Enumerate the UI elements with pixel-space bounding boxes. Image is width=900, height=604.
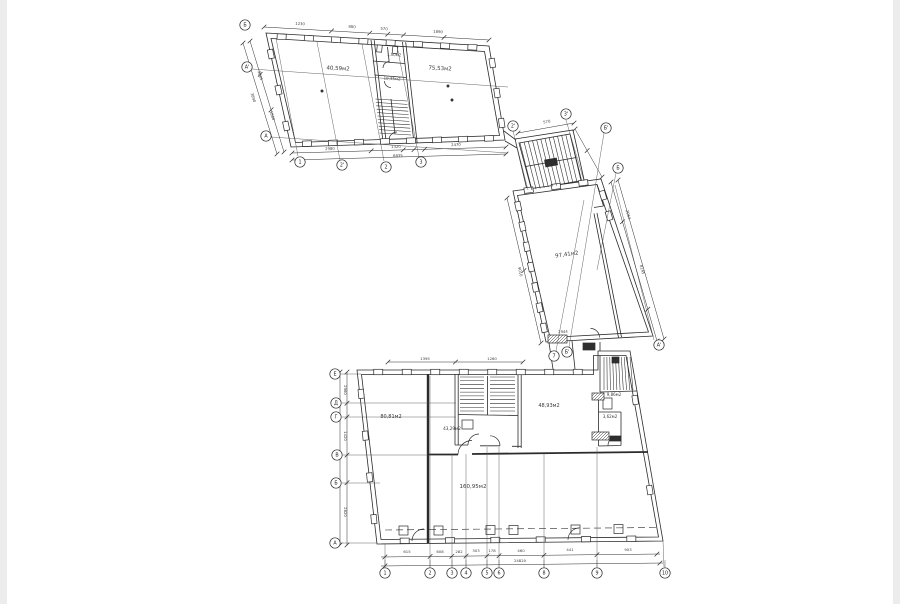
room-area-label: 43,29м2 <box>443 426 461 431</box>
dimension-label: 1230 <box>295 21 305 27</box>
grid-bubble-label: 4 <box>464 571 467 577</box>
window-mark <box>488 369 497 374</box>
window-mark <box>386 40 395 46</box>
wc-fixture <box>377 45 383 52</box>
dimension-tick <box>275 152 280 157</box>
grid-bubble-label: Б' <box>565 350 570 356</box>
grid-axis-line <box>663 541 664 567</box>
dimension-label: 1860 <box>269 110 277 121</box>
window-mark <box>627 536 636 541</box>
dimension-label: 2980 <box>343 385 348 395</box>
column <box>486 526 495 535</box>
floor-plan: БА'А12'232'3'Б'Б7Б'А'ЕДГВБА123456891040,… <box>0 0 900 604</box>
grid-bubble-label: 7 <box>552 354 555 360</box>
walls-layer <box>266 33 663 544</box>
window-mark <box>440 43 449 49</box>
window-mark <box>489 58 496 68</box>
dimension-tick <box>505 196 510 201</box>
dimension-tick <box>539 341 544 346</box>
window-mark <box>545 369 554 374</box>
column <box>399 526 408 535</box>
dimension-label: 178 <box>488 548 496 553</box>
dimension-label: 9010 <box>517 266 524 277</box>
dimension-line <box>381 554 660 557</box>
window-mark <box>358 389 364 399</box>
window-mark <box>304 35 313 41</box>
dimension-label: 3890 <box>250 92 258 103</box>
window-mark <box>413 41 422 47</box>
window-mark <box>494 88 501 98</box>
grid-bubble-label: 2 <box>428 571 431 577</box>
dimension-label: 2820 <box>343 507 348 517</box>
window-mark <box>445 538 454 543</box>
grid-bubble-label: 6 <box>497 571 500 577</box>
column <box>571 525 580 534</box>
room-area-label: 1,50м2 <box>387 52 402 58</box>
room-area-label: 10,35м2 <box>383 76 401 82</box>
grid-bubble-label: 1 <box>383 571 386 577</box>
window-mark <box>632 395 639 405</box>
grid-bubble-label: Е <box>333 372 336 378</box>
grid-bubble-label: 2' <box>511 124 515 130</box>
window-mark <box>459 369 468 374</box>
wing-d-outer-wall <box>357 351 663 544</box>
grid-bubble-label: А' <box>245 65 250 71</box>
room-area-label: 75,53м2 <box>428 65 452 72</box>
dimension-label: 282 <box>455 549 463 554</box>
dimension-label: 1420 <box>343 431 348 441</box>
grid-bubble-label: 3 <box>450 571 453 577</box>
window-mark <box>380 139 389 145</box>
dimension-label: 1395 <box>420 356 430 361</box>
window-mark <box>484 136 493 142</box>
dimension-tick <box>572 121 577 126</box>
grid-bubble-label: Б' <box>604 126 609 132</box>
dimension-tick <box>248 39 253 44</box>
dimension-label: 8145 <box>639 264 647 275</box>
dimension-label: 303 <box>472 548 480 553</box>
dimension-label: 570 <box>543 118 552 124</box>
window-mark <box>581 536 590 541</box>
grid-bubble-label: Б <box>616 166 619 172</box>
dimension-label: 615 <box>403 549 411 554</box>
window-mark <box>431 369 440 374</box>
window-mark <box>402 369 411 374</box>
window-mark <box>579 180 589 187</box>
window-mark <box>646 485 653 495</box>
window-mark <box>277 34 286 40</box>
dimension-tick <box>600 175 605 180</box>
fixture-block <box>462 420 473 429</box>
dimension-label: 570 <box>380 26 388 31</box>
room-area-label: 40,59м2 <box>326 65 350 72</box>
grid-bubble-label: 1 <box>298 160 301 166</box>
dimension-tick <box>609 180 614 185</box>
window-mark <box>359 38 368 44</box>
dimension-label: 441 <box>566 547 574 552</box>
room-area-label: 3,62м2 <box>603 414 618 419</box>
window-mark <box>524 187 534 194</box>
dimension-label: 608 <box>436 549 444 554</box>
dark-wall-block <box>583 343 595 350</box>
survey-dot <box>447 85 449 87</box>
column <box>614 525 623 534</box>
window-mark <box>302 141 311 147</box>
grid-bubble-label: 5 <box>485 571 488 577</box>
grid-bubble-label: Г <box>335 415 338 421</box>
dimension-label: 2005 <box>257 70 265 81</box>
grid-bubble-label: 9 <box>595 571 598 577</box>
survey-dot <box>321 90 323 92</box>
window-mark <box>366 473 372 483</box>
window-mark <box>400 538 409 543</box>
column <box>434 526 443 535</box>
dimension-tick <box>573 127 578 132</box>
grid-bubble-label: Д <box>334 401 338 407</box>
grid-bubble-label: Б <box>334 481 337 487</box>
window-mark <box>331 37 340 43</box>
grid-bubble-label: 10 <box>662 571 668 577</box>
dimension-label: 6835 <box>393 153 403 158</box>
dimension-tick <box>585 148 590 153</box>
window-mark <box>498 118 505 128</box>
dimension-label: 2944 <box>558 329 568 334</box>
grid-bubble-label: А' <box>657 343 662 349</box>
grid-bubble-label: 8 <box>542 571 545 577</box>
dimension-tick <box>616 178 621 183</box>
window-mark <box>354 139 363 145</box>
room-area-label: 80,81м2 <box>380 414 401 420</box>
grid-bubble-label: 2 <box>384 165 387 171</box>
grid-bubble-label: Б <box>243 23 246 29</box>
room-area-label: 160,95м2 <box>460 484 487 490</box>
window-mark <box>468 44 477 50</box>
grid-bubble-label: 3 <box>419 160 422 166</box>
floor-plan-page: БА'А12'232'3'Б'Б7Б'А'ЕДГВБА123456891040,… <box>0 0 900 604</box>
window-mark <box>362 431 368 441</box>
dimension-label: 2980 <box>325 146 335 151</box>
grid-bubble-label: 3' <box>564 112 568 118</box>
column <box>509 526 518 535</box>
dimension-label: 880 <box>348 24 356 29</box>
dimension-label: 2470 <box>451 142 461 147</box>
dimension-label: 1260 <box>487 356 497 361</box>
window-mark <box>371 514 377 524</box>
dimension-label: 1890 <box>433 29 443 35</box>
dimension-label: 1320 <box>391 144 401 149</box>
dimension-label: 903 <box>624 547 632 552</box>
grid-bubble-label: 2' <box>340 163 344 169</box>
room-area-label: 48,93м2 <box>538 403 559 409</box>
dimension-tick <box>516 131 521 136</box>
window-mark <box>432 137 441 143</box>
dimension-line <box>381 563 663 566</box>
dimension-label: 24820 <box>514 558 527 563</box>
window-mark <box>573 369 582 374</box>
window-mark <box>374 369 383 374</box>
dimension-tick <box>282 150 287 155</box>
dimension-label: 460 <box>517 548 525 553</box>
window-mark <box>516 369 525 374</box>
window-mark <box>491 537 500 542</box>
window-mark <box>406 138 415 144</box>
survey-dot <box>451 99 453 101</box>
dimension-label: 2064 <box>625 209 633 220</box>
room-area-label: 9,86м2 <box>607 392 622 397</box>
dimension-tick <box>241 41 246 46</box>
grid-bubble-label: В <box>335 453 338 459</box>
